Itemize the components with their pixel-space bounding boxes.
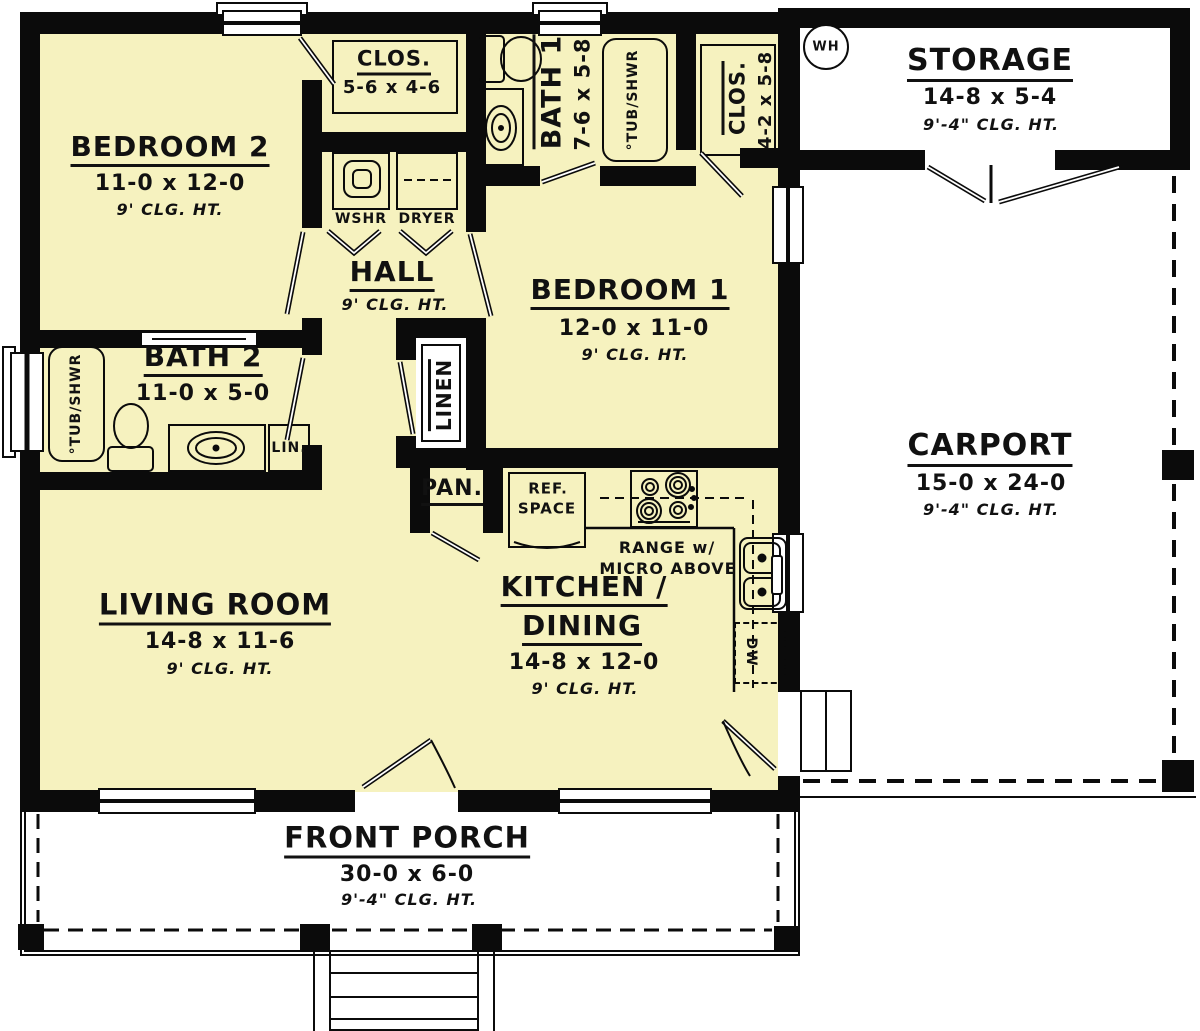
- bedroom1-title: BEDROOM 1: [531, 276, 730, 310]
- hall-ceiling: 9' CLG. HT.: [342, 297, 449, 313]
- ref-space-label-1: REF.: [528, 482, 568, 497]
- porch-post: [774, 926, 800, 952]
- wall-storage-top: [778, 8, 1190, 28]
- wall-linen-left-upper: [396, 338, 416, 360]
- porch-steps: [314, 952, 494, 1031]
- kitchen-title-line2: DINING: [522, 612, 642, 646]
- wall-bath2-bottom: [20, 472, 322, 490]
- linen-title: LINEN: [428, 359, 454, 431]
- range-box: [630, 470, 698, 528]
- dryer-box: [396, 152, 458, 210]
- bath1-vanity: [480, 88, 524, 166]
- range-label-1: RANGE w/: [619, 540, 715, 556]
- water-heater-label: WH: [812, 41, 839, 54]
- closet1-dims: 4-2 x 5-8: [757, 51, 775, 149]
- carport-stoop: [800, 690, 852, 772]
- washer-box: [332, 152, 390, 210]
- wall-bed2-closet: [302, 80, 322, 228]
- window-bath2-left: [10, 352, 44, 452]
- porch-post: [472, 924, 502, 950]
- dishwasher-box: [734, 622, 786, 684]
- ref-space-label-2: SPACE: [518, 502, 576, 517]
- dryer-label: DRYER: [398, 212, 455, 226]
- living-ceiling: 9' CLG. HT.: [167, 661, 274, 677]
- kitchen-title-line1: KITCHEN /: [501, 573, 668, 607]
- window-living-bottom: [98, 788, 256, 814]
- carport-door-opening: [778, 692, 800, 776]
- carport-title: CARPORT: [907, 431, 1072, 467]
- storage-dims: 14-8 x 5-4: [923, 87, 1057, 109]
- closet1-title: CLOS.: [722, 61, 749, 135]
- kitchen-dims: 14-8 x 12-0: [509, 652, 660, 674]
- closet2-dims: 5-6 x 4-6: [343, 79, 441, 97]
- bedroom1-ceiling: 9' CLG. HT.: [582, 347, 689, 363]
- window-bath1-top: [538, 10, 602, 36]
- window-kitchen-right: [772, 533, 804, 613]
- wall-top: [20, 12, 800, 34]
- wall-pantry-right: [483, 468, 503, 533]
- bath2-tub-label: °TUB/SHWR: [69, 354, 83, 455]
- window-kitchen-bottom: [558, 788, 712, 814]
- porch-dims: 30-0 x 6-0: [340, 864, 474, 886]
- front-door-opening: [355, 792, 458, 812]
- wall-storage-bottom-right: [1055, 150, 1190, 170]
- window-bedroom2-top: [222, 10, 302, 36]
- wall-kitchen-top: [486, 448, 778, 468]
- carport-dims: 15-0 x 24-0: [916, 473, 1067, 495]
- porch-post: [18, 924, 44, 950]
- carport-post-mid: [1162, 450, 1194, 480]
- porch-title: FRONT PORCH: [284, 824, 530, 859]
- porch-ceiling: 9'-4" CLG. HT.: [341, 892, 477, 908]
- bath2-dims: 11-0 x 5-0: [136, 383, 270, 405]
- carport-post-corner: [1162, 760, 1194, 792]
- bath1-tub-label: °TUB/SHWR: [626, 50, 640, 151]
- bath2-vanity: [168, 424, 266, 472]
- floor-plan: BEDROOM 2 11-0 x 12-0 9' CLG. HT. CLOS. …: [0, 0, 1200, 1031]
- wall-bed1-left-upper: [466, 186, 486, 232]
- closet2-title: CLOS.: [357, 49, 431, 76]
- storage-ceiling: 9'-4" CLG. HT.: [923, 117, 1059, 133]
- window-bedroom1-right: [772, 186, 804, 264]
- wall-linen-bottom: [396, 448, 486, 468]
- pantry-title: PAN.: [421, 478, 483, 506]
- wall-storage-right: [1170, 8, 1190, 170]
- linen-cabinet-label: LIN.: [271, 441, 306, 455]
- bath2-title: BATH 2: [144, 343, 263, 377]
- carport-ceiling: 9'-4" CLG. HT.: [923, 502, 1059, 518]
- washer-label: WSHR: [335, 212, 387, 226]
- bedroom2-title: BEDROOM 2: [71, 133, 270, 167]
- wall-bath1-bottom-left: [466, 166, 540, 186]
- wall-hall-left-jamb: [302, 318, 322, 355]
- bedroom1-dims: 12-0 x 11-0: [559, 318, 710, 340]
- kitchen-ceiling: 9' CLG. HT.: [532, 681, 639, 697]
- bath1-dims: 7-6 x 5-8: [573, 37, 594, 150]
- bedroom2-dims: 11-0 x 12-0: [95, 173, 246, 195]
- porch-post: [300, 924, 330, 950]
- wall-closet1-left: [676, 34, 696, 150]
- living-dims: 14-8 x 11-6: [145, 631, 296, 653]
- bedroom2-ceiling: 9' CLG. HT.: [117, 202, 224, 218]
- wall-closet2-bottom: [322, 132, 480, 152]
- dishwasher-label: DW: [744, 637, 758, 666]
- storage-title: STORAGE: [907, 46, 1073, 82]
- hall-title: HALL: [350, 258, 435, 292]
- bath1-title: BATH 1: [533, 35, 566, 150]
- wall-bath1-bottom-right: [600, 166, 696, 186]
- wall-storage-bottom-left: [800, 150, 925, 170]
- wall-linen-top: [396, 318, 486, 338]
- living-title: LIVING ROOM: [99, 591, 331, 626]
